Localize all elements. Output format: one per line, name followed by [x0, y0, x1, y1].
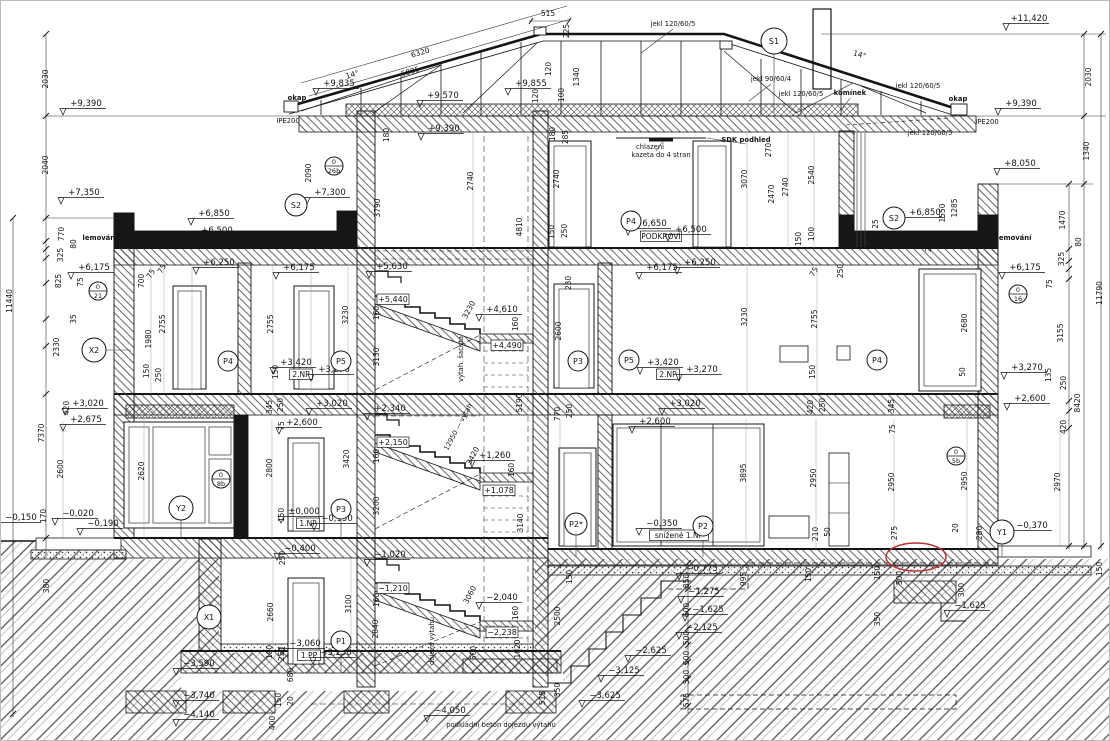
elevation-label: −2,238: [487, 628, 517, 637]
note-label: jekl 120/60/5: [895, 82, 941, 90]
reference-marker-label: P2*: [569, 520, 583, 529]
dimension-label: 345: [265, 400, 274, 415]
dimension-label: 575: [682, 693, 691, 708]
elevation-arrow-icon: [60, 109, 66, 116]
dimension-label: 120: [531, 89, 540, 104]
ground-floor-slab-right: [548, 549, 998, 565]
building-section-drawing: +11,42020302030+9,390+9,3902040+7,350114…: [1, 1, 1110, 741]
elevation-label: +9,390: [70, 99, 101, 109]
elevation-label: +2,600: [639, 417, 670, 427]
elevation-label: +6,175: [646, 263, 677, 273]
dimension-label: 150: [565, 570, 574, 585]
elevation-label: −1,020: [374, 550, 405, 560]
elevation-arrow-icon: [1001, 373, 1007, 380]
dimension-label: 180: [548, 127, 557, 142]
dimension-label: 20: [286, 696, 295, 706]
left-wing-parapet: [337, 211, 357, 248]
truss-diagonals: [301, 43, 926, 113]
reference-marker-label: P5: [624, 356, 634, 365]
elevation-label: −3,590: [183, 659, 214, 669]
elevation-label: +9,835: [323, 79, 354, 89]
dimension-label: 150: [808, 365, 817, 380]
elevation-label: −1,625: [692, 605, 723, 615]
reference-marker-label: X2: [89, 346, 100, 355]
dimension-label: 1340: [1082, 141, 1091, 160]
elevation-label: +3,020: [669, 399, 700, 409]
dimension-label: 150: [547, 225, 556, 240]
dimension-label: 2540: [807, 165, 816, 184]
footing: [223, 691, 275, 713]
reference-marker-label: P4: [872, 356, 882, 365]
dimension-label: 2740: [466, 171, 475, 190]
dimension-label: 2970: [1053, 472, 1062, 491]
dimension-label: 250: [278, 551, 287, 566]
reference-marker-label: P1: [336, 637, 346, 646]
dimension-label: 1470: [1058, 210, 1067, 229]
elevation-arrow-icon: [188, 219, 194, 226]
dimension-label: 160: [372, 306, 381, 321]
dimension-label: 250: [818, 398, 827, 413]
note-label: IPE200: [975, 118, 998, 126]
elevation-label: +8,050: [1004, 159, 1035, 169]
dimension-label: 2090: [304, 163, 313, 182]
dimension-label: 3100: [344, 594, 353, 613]
right-parapet: [978, 215, 998, 248]
elevation-label: +6,850: [198, 209, 229, 219]
dimension-label: 160: [511, 606, 520, 621]
elevation-label: −3,625: [589, 691, 620, 701]
elevation-label: +3,420: [280, 358, 311, 368]
dimension-label: 6320: [410, 45, 431, 59]
dimension-label: 500: [895, 571, 904, 586]
elevation-label: −0,370: [1016, 521, 1047, 531]
low-window: [769, 516, 809, 538]
ridge-upstand-right: [720, 41, 732, 49]
reference-marker-label: X1: [204, 613, 215, 622]
dimension-label: 3200: [372, 496, 381, 515]
dimension-label: 3230: [460, 299, 477, 320]
dimension-label: 770: [57, 227, 66, 242]
dimension-label: 2030: [1084, 67, 1093, 86]
reference-marker-label: P3: [336, 505, 346, 514]
dimension-label: 350: [873, 612, 882, 627]
elevation-label: +1,078: [484, 486, 514, 495]
dimension-label: 680: [286, 668, 295, 683]
dimension-label: 2680: [960, 313, 969, 332]
elevation-label: +7,350: [68, 188, 99, 198]
roof-slab: [299, 116, 976, 132]
dimension-label: 11790: [1095, 281, 1104, 305]
dimension-label: 160: [507, 463, 516, 478]
dimension-label: 2620: [137, 461, 146, 480]
dimension-label: 2330: [52, 337, 61, 356]
elevation-label: −1,210: [378, 584, 408, 593]
elevation-label: +6,250: [684, 258, 715, 268]
dimension-label: 3230: [341, 305, 350, 324]
elevation-arrow-icon: [994, 169, 1000, 176]
dimension-label: 150: [873, 566, 882, 581]
wall-box: [780, 346, 808, 362]
elevation-arrow-icon: [273, 273, 279, 280]
reference-marker-label: P3: [573, 357, 583, 366]
dimension-label: 35: [69, 314, 78, 324]
elevation-label: +6,500: [201, 226, 232, 236]
reference-marker-label: Y2: [175, 504, 186, 513]
dimension-label: 180: [382, 128, 391, 143]
dimension-label: 2950: [809, 468, 818, 487]
elevation-label: −3,125: [608, 666, 639, 676]
elevation-label: +5,440: [378, 295, 408, 304]
dimension-label: 75: [1045, 279, 1054, 289]
dimension-label: 825: [54, 274, 63, 289]
dimension-label: 300: [957, 583, 966, 598]
dimension-label: 3790: [373, 198, 382, 217]
elevation-label: −0,150: [5, 513, 36, 523]
dimension-label: 3420: [342, 449, 351, 468]
dimension-label: 995: [739, 572, 748, 587]
dimension-label: 325: [1057, 252, 1066, 267]
dimension-label: 2030: [41, 69, 50, 88]
dimension-label: 285: [561, 130, 570, 145]
dimension-label: 2600: [554, 321, 563, 340]
terrace-right-slab: [998, 546, 1091, 557]
note-label: komínek: [834, 89, 867, 97]
dimension-label: 150: [804, 568, 813, 583]
eave-right: [951, 104, 967, 115]
dimension-label: 250: [836, 264, 845, 279]
elevation-label: −2,040: [486, 593, 517, 603]
dimension-label: 160: [511, 317, 520, 332]
basement-exterior-wall: [199, 539, 221, 651]
dimension-label: 150: [1095, 562, 1104, 577]
dimension-label: 275: [890, 526, 899, 541]
elevation-label: +3,270: [686, 365, 717, 375]
interior-wall: [234, 415, 248, 538]
note-label: dojezd výtahu: [428, 617, 436, 665]
dimension-label: 150: [142, 364, 151, 379]
elevation-label: −0,020: [62, 509, 93, 519]
elevation-arrow-icon: [1003, 24, 1009, 31]
note-label: jekl 120/60/5: [907, 129, 953, 137]
dimension-label: 14°: [852, 49, 867, 61]
attic-parapet: [839, 215, 854, 248]
terrace-right-build-up: [846, 231, 978, 248]
elevation-label: +4,490: [492, 341, 522, 350]
roof-insulation: [346, 104, 858, 116]
elevation-label: +3,270: [1011, 363, 1042, 373]
elevation-label: +9,390: [428, 124, 459, 134]
dimension-label: 2950: [887, 472, 896, 491]
dimension-label: 150: [277, 508, 286, 523]
dimension-label: 250: [565, 404, 574, 419]
elevation-label: +6,175: [78, 263, 109, 273]
dimension-label: 2500: [553, 606, 562, 625]
detail-marker-bottom: 16: [1014, 295, 1022, 303]
dimension-label: 5805: [400, 64, 421, 78]
elevation-label: −1,625: [954, 601, 985, 611]
elevation-label: −4,050: [434, 706, 465, 716]
dimension-label: 350: [553, 683, 562, 698]
note-label: podkladní beton dojezdu výtahu: [446, 721, 556, 729]
dimension-label: 80: [1074, 237, 1083, 247]
elevation-label: +9,570: [427, 91, 458, 101]
note-label: jekl 120/60/5: [650, 20, 696, 28]
dimension-label: 190: [265, 645, 274, 660]
dimension-label: 420: [62, 401, 71, 416]
dimension-label: 600: [682, 603, 691, 618]
attic-floor-slab: [114, 248, 998, 265]
dimension-label: 2470: [767, 184, 776, 203]
gravel-bed-left: [31, 550, 126, 559]
note-label: IPE200: [276, 117, 299, 125]
detail-marker-top: 0: [219, 471, 223, 479]
elevation-label: +9,855: [515, 79, 546, 89]
elevation-arrow-icon: [1004, 404, 1010, 411]
elevation-arrow-icon: [995, 109, 1001, 116]
dimension-label: 2755: [266, 314, 275, 333]
reference-marker-label: P4: [223, 357, 233, 366]
dimension-label: 170: [39, 509, 48, 524]
dimension-label: 3230: [740, 307, 749, 326]
elevation-label: +5,630: [376, 262, 407, 272]
elevation-label: −0,775: [686, 564, 717, 574]
dimension-label: 250: [560, 224, 569, 239]
dimension-label: 2740: [781, 177, 790, 196]
elevation-label: +7,300: [314, 188, 345, 198]
footing: [506, 691, 556, 713]
dimension-label: 75: [277, 421, 286, 431]
elevation-label: +4,610: [486, 305, 517, 315]
elevation-label: −1,275: [688, 587, 719, 597]
dimension-label: 1020: [513, 639, 522, 658]
dimension-label: 515: [541, 9, 556, 18]
note-label: jekl 120/60/5: [778, 90, 824, 98]
dimension-label: 75: [808, 265, 821, 278]
elevation-label: +11,420: [1011, 14, 1048, 24]
dimension-label: 25: [871, 219, 880, 229]
dimension-label: 2040: [41, 155, 50, 174]
elevation-label: −0,190: [87, 519, 118, 529]
note-label: lemování: [83, 234, 119, 242]
terrace-left-slab: [36, 538, 121, 550]
dimension-label: 500: [469, 646, 478, 661]
dimension-label: 1980: [144, 329, 153, 348]
reference-marker-label: P4: [626, 217, 636, 226]
dimension-label: 8420: [1073, 393, 1082, 412]
dimension-label: 345: [887, 399, 896, 414]
chimney: [813, 9, 831, 89]
elevation-arrow-icon: [476, 315, 482, 322]
elevation-arrow-icon: [999, 273, 1005, 280]
dimension-label: 420: [806, 400, 815, 415]
dimension-label: 160: [372, 593, 381, 608]
dimension-label: 3155: [1056, 323, 1065, 342]
note-label: lemování: [997, 234, 1033, 242]
dimension-label: 325: [56, 248, 65, 263]
dimension-label: 3130: [372, 347, 381, 366]
dimension-label: 380: [42, 579, 51, 594]
elevation-label: +2,340: [374, 404, 405, 414]
terrace-left-build-up: [129, 231, 353, 248]
elevation-label: +1,260: [479, 451, 510, 461]
elevation-arrow-icon: [193, 268, 199, 275]
dimension-label: 210: [811, 527, 820, 542]
dimension-label: 1285: [950, 198, 959, 217]
detail-marker-bottom: 5b: [952, 457, 960, 465]
dimension-label: 2840: [371, 619, 380, 638]
stair-shaft-right-wall: [533, 111, 548, 687]
note-label: 2.NP: [659, 370, 677, 379]
ground-floor-slab-left: [114, 538, 548, 558]
dimension-label: 3070: [740, 169, 749, 188]
dimension-label: 420: [1059, 420, 1068, 435]
roof-top-chord: [284, 34, 963, 111]
dimension-label: 3140: [516, 513, 525, 532]
elevation-arrow-icon: [505, 89, 511, 96]
dimension-label: 850: [682, 574, 691, 589]
elevation-label: +2,150: [378, 438, 408, 447]
dimension-label: 400: [268, 716, 277, 731]
note-label: kazeta do 4 stran: [631, 151, 690, 159]
dimension-label: 500: [682, 670, 691, 685]
dimension-label: 2755: [810, 309, 819, 328]
note-label: 2.NP: [292, 370, 310, 379]
elevation-label: +3,420: [647, 358, 678, 368]
dimension-label: 150: [794, 232, 803, 247]
elevation-arrow-icon: [418, 134, 424, 141]
elevation-label: −3,060: [289, 639, 320, 649]
elevation-label: ±0,000: [288, 507, 319, 517]
dimension-label: 250: [276, 398, 285, 413]
cabinet: [829, 453, 849, 546]
dimension-label: 270: [764, 143, 773, 158]
architectural-section-sheet: +11,42020302030+9,390+9,3902040+7,350114…: [0, 0, 1110, 741]
dimension-label: 50: [958, 367, 967, 377]
dimension-label: 100: [807, 227, 816, 242]
footing: [344, 691, 389, 713]
note-label: 1.PP: [301, 651, 318, 660]
detail-marker-top: 0: [332, 158, 336, 166]
dimension-label: 120: [544, 62, 553, 77]
elevation-label: −2,625: [635, 646, 666, 656]
eave-left: [284, 101, 298, 112]
dimension-label: 11440: [5, 289, 14, 313]
elevation-label: −2,125: [686, 623, 717, 633]
dimension-label: 20: [951, 523, 960, 533]
dimension-label: 250: [154, 368, 163, 383]
dimension-label: 2600: [56, 459, 65, 478]
elevation-arrow-icon: [52, 519, 58, 526]
elevation-label: −0,400: [284, 544, 315, 554]
dimension-label: 7370: [37, 423, 46, 442]
dimension-label: 515: [538, 691, 547, 706]
elevation-label: −0,350: [646, 519, 677, 529]
elevation-label: +6,175: [283, 263, 314, 273]
gravel-bed-right: [548, 566, 1091, 575]
dimension-label: 225: [562, 24, 571, 39]
dimension-label: 250: [1059, 376, 1068, 391]
reference-marker-label: P2: [698, 522, 708, 531]
dimension-label: 150: [274, 693, 283, 708]
dimension-label: 160: [372, 449, 381, 464]
detail-marker-bottom: 21: [94, 292, 102, 300]
interior-wall: [598, 415, 612, 549]
dimension-label: 230: [564, 276, 573, 291]
dimension-label: 2660: [266, 602, 275, 621]
reference-marker-label: S1: [769, 37, 779, 46]
dimension-label: 2950: [960, 471, 969, 490]
detail-marker-top: 0: [96, 283, 100, 291]
dimension-label: 500: [682, 651, 691, 666]
dimension-label: 80: [69, 239, 78, 249]
elevation-arrow-icon: [58, 198, 64, 205]
elevation-label: −4,140: [183, 710, 214, 720]
elevation-label: +2,675: [70, 415, 101, 425]
dimension-label: 250: [924, 238, 933, 253]
dimension-label: 135: [1044, 368, 1053, 383]
dimension-label: 280: [975, 526, 984, 541]
dimension-label: 75: [76, 277, 85, 287]
dimension-label: 3895: [739, 463, 748, 482]
dimension-label: 50: [823, 527, 832, 537]
footing: [126, 691, 186, 713]
elevation-label: +3,020: [316, 399, 347, 409]
elevation-arrow-icon: [637, 368, 643, 375]
dimension-label: 2740: [552, 169, 561, 188]
dimension-label: 1340: [572, 67, 581, 86]
reference-marker-label: P5: [336, 357, 346, 366]
reference-marker-label: Y1: [996, 528, 1007, 537]
elevation-label: +3,020: [72, 399, 103, 409]
dimension-label: 4810: [515, 217, 524, 236]
interior-wall: [598, 263, 612, 394]
elevation-label: +2,600: [286, 418, 317, 428]
note-label: okap: [288, 94, 307, 102]
detail-marker-bottom: 26b: [328, 167, 340, 175]
elevation-label: −3,740: [183, 691, 214, 701]
elevation-arrow-icon: [77, 529, 83, 536]
dimension-label: 75: [888, 424, 897, 434]
insulation-strip-left: [126, 405, 234, 418]
dimension-label: 2755: [158, 314, 167, 333]
detail-marker-bottom: 8b: [217, 480, 225, 488]
interior-wall: [238, 263, 251, 394]
elevation-label: +6,850: [909, 208, 940, 218]
elevation-label: +6,500: [675, 225, 706, 235]
elevation-label: +9,390: [1005, 99, 1036, 109]
note-label: okap: [949, 95, 968, 103]
note-label: SDK podhled: [721, 136, 770, 144]
dimension-label: 700: [137, 274, 146, 289]
wall-box: [837, 346, 850, 360]
dimension-label: 2800: [265, 458, 274, 477]
elevation-label: +2,600: [1014, 394, 1045, 404]
elevation-label: +6,175: [1009, 263, 1040, 273]
dimension-label: 100: [557, 88, 566, 103]
elevation-label: +6,250: [203, 258, 234, 268]
dimension-label: 5190: [515, 393, 524, 412]
reference-marker-label: S2: [889, 214, 899, 223]
detail-marker-top: 0: [1016, 286, 1020, 294]
elevation-arrow-icon: [636, 273, 642, 280]
detail-marker-top: 0: [954, 448, 958, 456]
note-label: výtah. šachta: [457, 336, 465, 382]
reference-marker-label: S2: [291, 201, 301, 210]
elevation-arrow-icon: [68, 273, 74, 280]
note-label: jekl 90/60/4: [750, 75, 791, 83]
note-label: chlazení: [636, 143, 665, 151]
dimension-label: 770: [553, 407, 562, 422]
